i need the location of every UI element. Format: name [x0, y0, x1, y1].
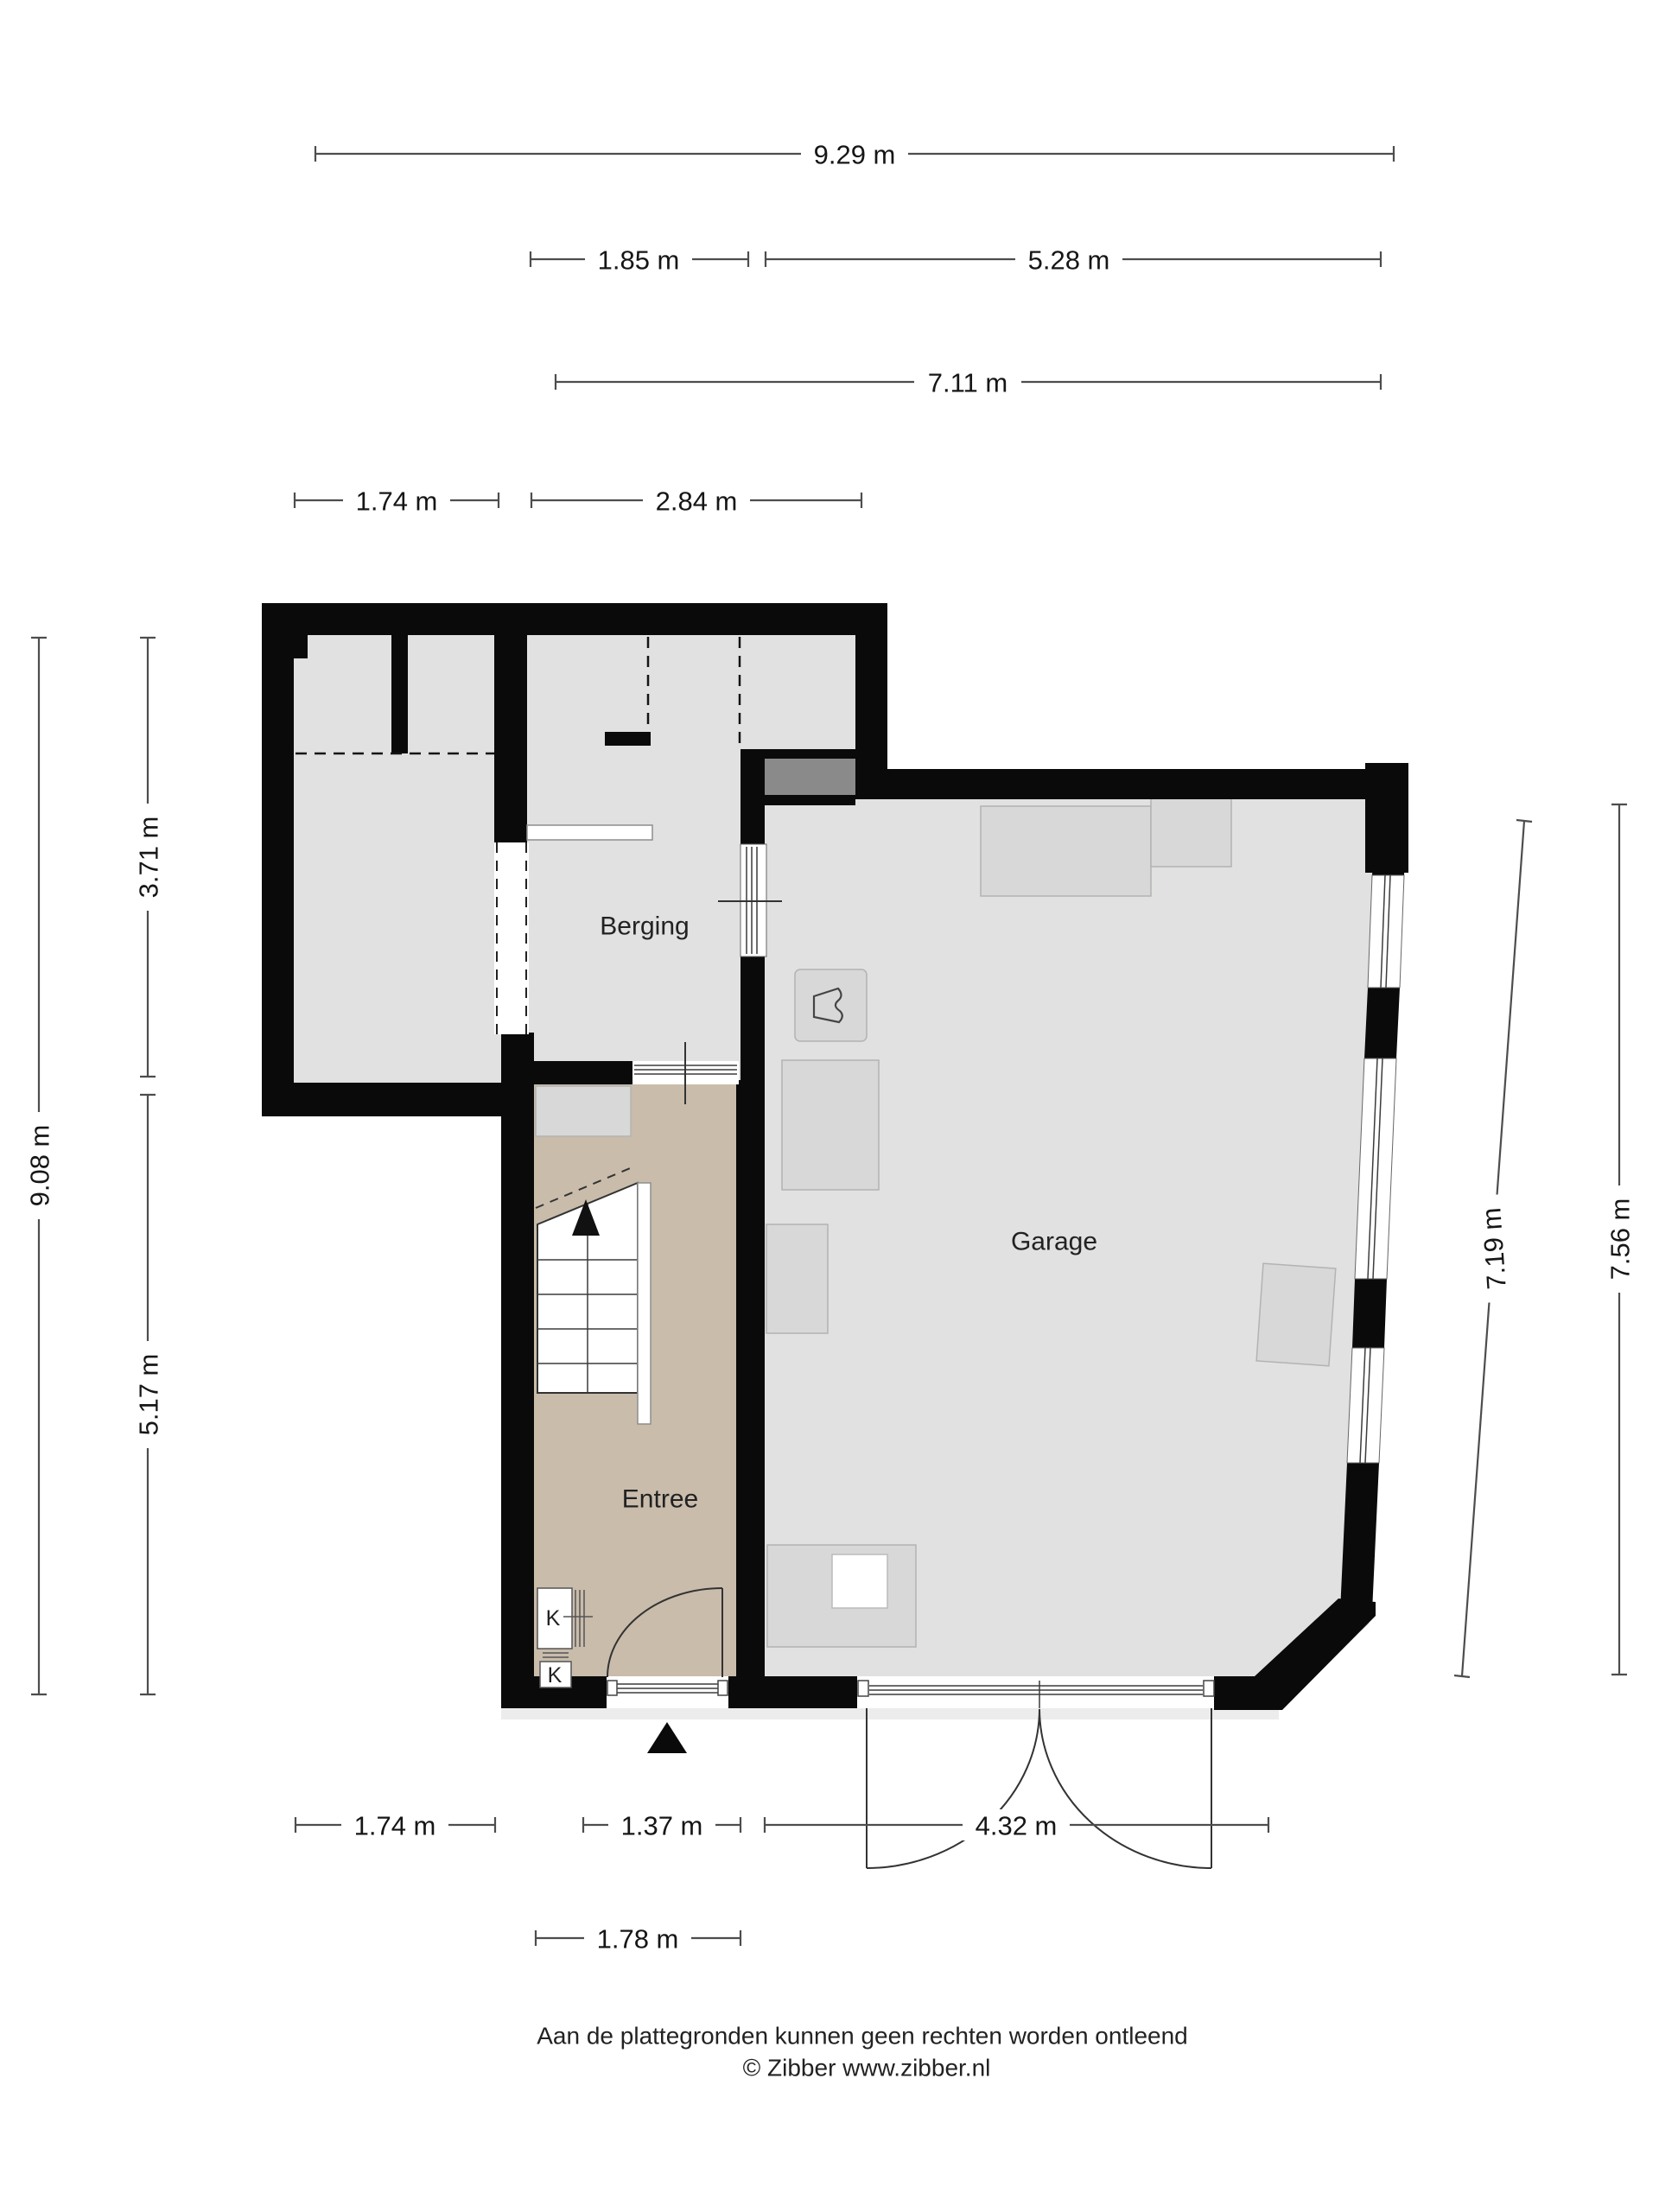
dim-label-bottom-door: 1.78 m — [597, 1924, 679, 1955]
wall-segment — [736, 1080, 765, 1678]
garage-shelf-lower — [766, 1224, 828, 1333]
wall-segment — [605, 732, 651, 746]
wall-segment — [1364, 988, 1400, 1058]
dim-label-bottom-garage: 4.32 m — [976, 1811, 1058, 1841]
wall-segment — [855, 769, 1408, 799]
room-label-berging: Berging — [600, 912, 689, 941]
dim-label-top-berging: 1.85 m — [598, 245, 680, 276]
wall-segment — [262, 1083, 534, 1116]
berging-counter — [527, 825, 652, 840]
dim-label-left-bottom: 5.17 m — [134, 1354, 164, 1436]
garage-cabinet-right — [1151, 788, 1231, 867]
dim-label-right-total: 7.56 m — [1605, 1198, 1636, 1281]
garage-door-left-arc — [867, 1709, 1039, 1868]
entree-cabinet — [536, 1086, 631, 1136]
floorplan-canvas: K K Berging Garage Entree 9.29 m 1.85 m … — [0, 0, 1659, 2212]
open-passage — [494, 842, 529, 1034]
washbasin-unit — [795, 969, 867, 1041]
garage-shelf — [782, 1060, 879, 1190]
door-post — [718, 1681, 728, 1695]
dim-label-top-room: 1.74 m — [356, 486, 438, 517]
dim-label-bottom-room: 1.74 m — [354, 1811, 436, 1841]
wall-segment — [1352, 1279, 1387, 1348]
room-label-garage: Garage — [1011, 1228, 1097, 1256]
dim-label-bottom-entree: 1.37 m — [621, 1811, 703, 1841]
door-post — [858, 1681, 868, 1696]
dim-label-left-top: 3.71 m — [134, 817, 164, 899]
door-post — [607, 1681, 617, 1695]
garage-door-right-arc — [1039, 1709, 1211, 1868]
wall-segment — [728, 1676, 857, 1708]
dim-label-top-hall: 2.84 m — [656, 486, 738, 517]
wall-segment — [262, 603, 887, 635]
wall-segment — [765, 749, 855, 759]
closet-label-top: K — [546, 1606, 561, 1630]
workbench-inset — [832, 1554, 887, 1608]
dim-label-top-garage: 5.28 m — [1028, 245, 1110, 276]
dim-label-top-inner: 7.11 m — [928, 368, 1007, 398]
wall-segment — [1372, 782, 1408, 875]
dim-label-left-total: 9.08 m — [25, 1125, 55, 1207]
wall-segment — [741, 956, 765, 1085]
wall-segment — [743, 795, 855, 805]
dim-label-group: 9.08 m — [23, 1112, 55, 1219]
stair-handrail — [638, 1183, 651, 1424]
wall-segment — [294, 603, 308, 658]
footer-disclaimer: Aan de plattegronden kunnen geen rechten… — [537, 2023, 1187, 2050]
footer-copyright: © Zibber www.zibber.nl — [743, 2055, 991, 2082]
dim-label-group: 7.56 m — [1604, 1185, 1636, 1293]
wall-segment — [391, 635, 408, 753]
dim-label-top-total: 9.29 m — [814, 140, 896, 170]
floorplan-page: K K Berging Garage Entree 9.29 m 1.85 m … — [0, 0, 1659, 2212]
wall-segment — [262, 603, 294, 1116]
dim-label-group: 3.71 m — [132, 804, 164, 911]
room-label-entree: Entree — [622, 1485, 698, 1514]
door-post — [1204, 1681, 1214, 1696]
dim-label-group: 5.17 m — [132, 1341, 164, 1448]
wall-segment — [494, 635, 527, 842]
garage-door-opening — [857, 1676, 1214, 1708]
closet-label-bottom: K — [548, 1663, 563, 1688]
wall-segment — [534, 1061, 632, 1084]
wall-segment — [501, 1033, 534, 1708]
garage-cabinet-left — [981, 806, 1151, 896]
entrance-arrow-icon — [647, 1722, 687, 1753]
facade-shadow — [501, 1708, 1279, 1719]
dim-label-right-inner: 7.19 m — [1476, 1206, 1512, 1290]
garage-crate — [1256, 1263, 1336, 1366]
dim-label-group: 7.19 m — [1474, 1194, 1513, 1303]
dark-recess — [753, 757, 855, 797]
